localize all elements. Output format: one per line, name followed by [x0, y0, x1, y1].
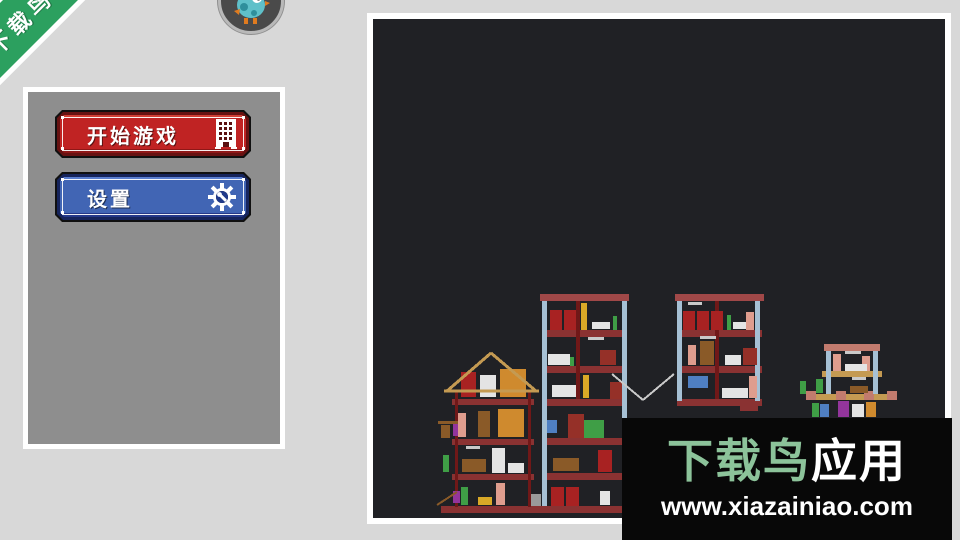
building-icon: [215, 119, 237, 149]
watermark: 下载鸟应用 www.xiazainiao.com: [622, 418, 952, 540]
settings-button-label: 设置: [87, 172, 133, 222]
gear-icon: [207, 182, 237, 212]
watermark-brand-suffix: 应用: [811, 435, 907, 487]
watermark-url: www.xiazainiao.com: [661, 491, 913, 522]
download-ribbon: 下载鸟: [0, 0, 150, 150]
ribbon-band: 下载鸟: [0, 0, 109, 110]
watermark-title: 下载鸟应用: [667, 436, 907, 487]
settings-button[interactable]: 设置: [55, 172, 251, 222]
bird-mascot-icon: [232, 0, 270, 25]
app-logo-badge: [218, 0, 284, 34]
watermark-brand-green: 下载鸟: [667, 435, 811, 487]
